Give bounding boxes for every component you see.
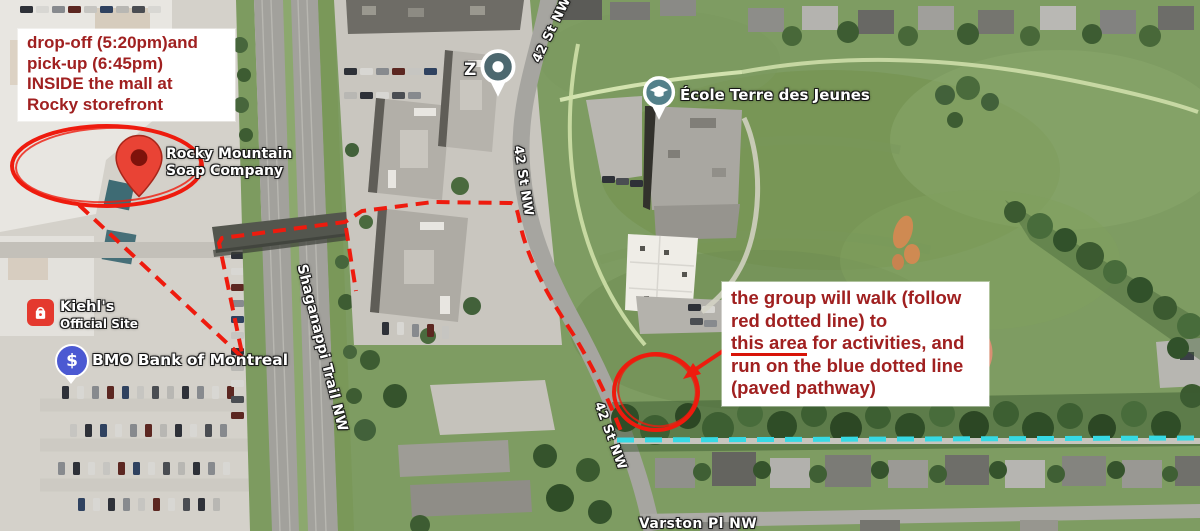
kiehls-label[interactable]: Kiehl's Official Site [60,299,138,333]
dropoff-note-line1: drop-off (5:20pm)and [27,33,227,54]
rocky-map-pin-icon[interactable] [114,134,164,198]
z-marker-label[interactable]: Z [464,62,476,79]
dollar-sign: $ [66,351,78,371]
dropoff-pickup-note: drop-off (5:20pm)and pick-up (6:45pm) IN… [18,29,235,121]
walk-note-line2: red dotted line) to [731,310,981,333]
map-viewport[interactable]: Rocky Mountain Soap Company Kiehl's Offi… [0,0,1200,531]
kiehls-name: Kiehl's [60,299,138,316]
rocky-label-line2: Soap Company [166,163,292,180]
kiehls-subtitle: Official Site [60,316,138,333]
rocky-label-line1: Rocky Mountain [166,146,292,163]
this-area-underlined-text: this area [731,332,807,356]
street-label-varston: Varston Pl NW [639,516,757,531]
bmo-dollar-icon[interactable]: $ [55,344,89,378]
shopping-bag-icon [32,304,49,321]
walk-note-line5: (paved pathway) [731,377,981,400]
ecole-label[interactable]: École Terre des Jeunes [680,87,870,104]
walk-note-line1: the group will walk (follow [731,287,981,310]
school-pin-icon[interactable] [641,75,677,121]
z-place-pin-icon[interactable] [479,48,517,98]
walk-note-line3-rest: for activities, and [807,332,964,353]
bmo-pin-tail-icon [64,375,78,384]
dropoff-note-line3: INSIDE the mall at [27,74,227,95]
bmo-label[interactable]: BMO Bank of Montreal [92,352,288,369]
rocky-mountain-soap-label[interactable]: Rocky Mountain Soap Company [166,146,292,180]
dropoff-note-line2: pick-up (6:45pm) [27,54,227,75]
kiehls-shopping-icon[interactable] [27,299,54,326]
walk-route-note: the group will walk (follow red dotted l… [722,282,989,406]
walk-note-line4: run on the blue dotted line [731,355,981,378]
walk-note-line3: this area for activities, and [731,332,981,355]
dropoff-note-line4: Rocky storefront [27,95,227,116]
